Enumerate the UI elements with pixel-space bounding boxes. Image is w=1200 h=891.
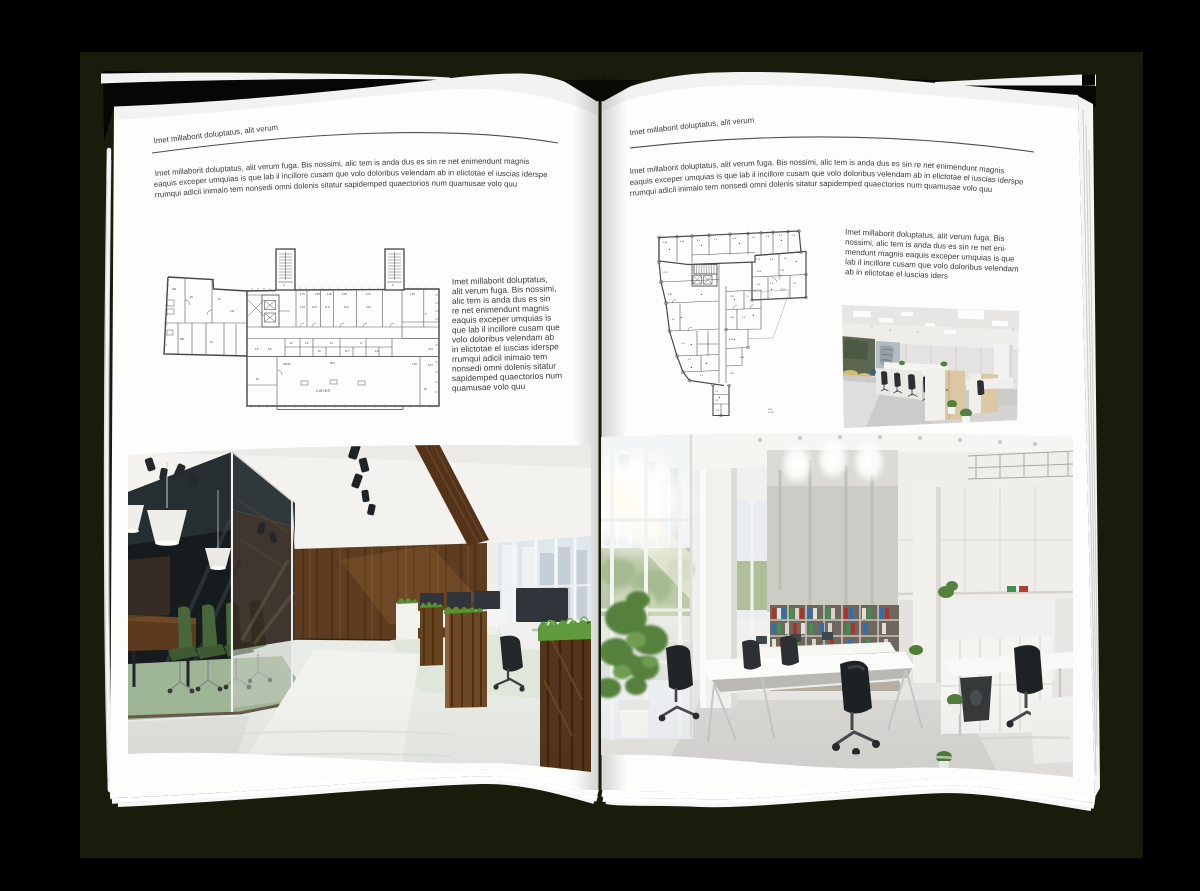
svg-text:10.8: 10.8 xyxy=(312,306,317,309)
svg-text:2.85: 2.85 xyxy=(315,293,320,296)
svg-text:5.43: 5.43 xyxy=(428,364,433,367)
svg-text:▲: ▲ xyxy=(690,366,693,369)
svg-text:11.7: 11.7 xyxy=(345,350,350,353)
svg-text:86.5: 86.5 xyxy=(330,362,335,365)
svg-text:3.05: 3.05 xyxy=(342,293,347,296)
svg-text:▲: ▲ xyxy=(700,293,703,296)
svg-text:24.5: 24.5 xyxy=(366,306,371,309)
svg-text:16.5: 16.5 xyxy=(344,306,349,309)
svg-text:▲: ▲ xyxy=(780,239,783,242)
svg-text:2.35: 2.35 xyxy=(327,293,332,296)
svg-text:11.8: 11.8 xyxy=(325,306,330,309)
svg-text:▲: ▲ xyxy=(733,298,736,301)
svg-text:▲: ▲ xyxy=(770,288,773,291)
svg-text:▲: ▲ xyxy=(733,338,736,341)
svg-text:▲: ▲ xyxy=(705,362,708,365)
svg-text:205: 205 xyxy=(172,288,177,291)
svg-text:▲: ▲ xyxy=(668,248,671,251)
svg-text:3.75: 3.75 xyxy=(366,293,371,296)
svg-text:▲: ▲ xyxy=(700,244,703,247)
svg-text:0.44: 0.44 xyxy=(428,348,433,351)
svg-text:14.16: 14.16 xyxy=(780,289,786,291)
svg-text:▲: ▲ xyxy=(795,260,798,263)
svg-text:2.75: 2.75 xyxy=(300,293,305,296)
svg-text:▲: ▲ xyxy=(738,242,741,245)
svg-text:quamusae volo quu: quamusae volo quu xyxy=(452,381,526,393)
svg-text:▲: ▲ xyxy=(680,316,683,319)
svg-text:▲: ▲ xyxy=(718,396,721,399)
svg-text:13.8: 13.8 xyxy=(300,306,305,309)
svg-text:17.08: 17.08 xyxy=(768,412,774,414)
svg-text:1.40: 1.40 xyxy=(412,363,417,366)
svg-text:3.11: 3.11 xyxy=(230,310,235,313)
svg-text:1.45: 1.45 xyxy=(410,293,415,296)
svg-text:▲: ▲ xyxy=(752,314,755,317)
svg-text:▲: ▲ xyxy=(690,343,693,346)
svg-text:342.85: 342.85 xyxy=(283,363,291,366)
svg-text:2-OH 3HT: 2-OH 3HT xyxy=(316,389,331,393)
svg-text:205: 205 xyxy=(180,338,185,341)
